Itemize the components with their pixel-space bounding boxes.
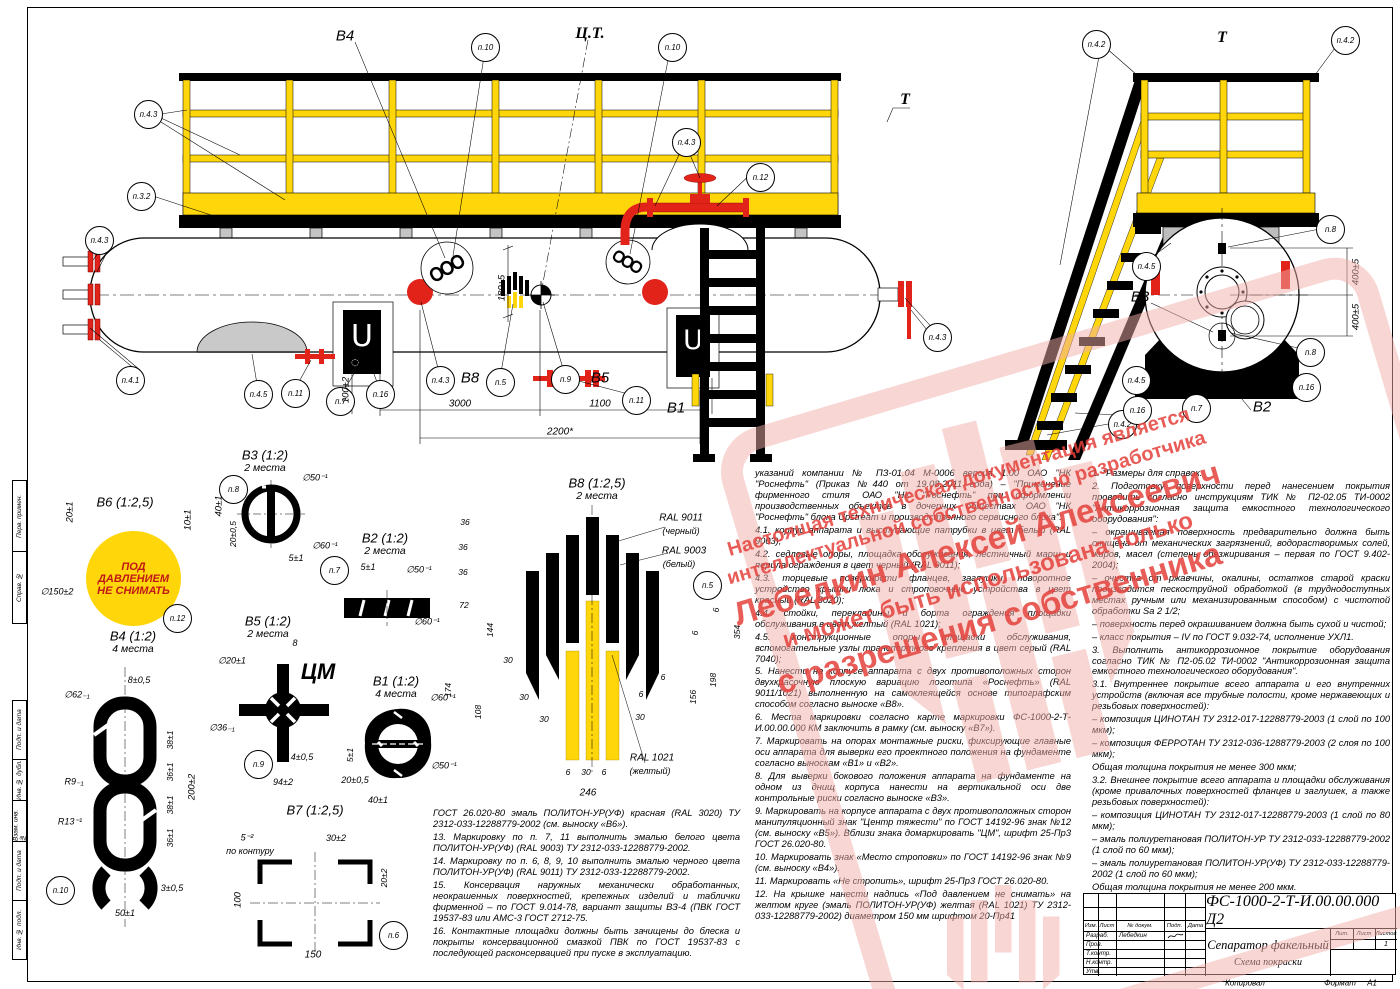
- view-letter-t-end: Т: [1217, 29, 1227, 47]
- detail-b8-ral-yellow-note: (желтый): [629, 766, 670, 776]
- note-paragraph: – эмаль полиуретановая ПОЛИТОН-УР ТУ 231…: [1092, 834, 1390, 856]
- note-paragraph: 4.3. торцевые поверхности фланцев, заглу…: [755, 573, 1071, 606]
- note-paragraph: 1. *Размеры для справок.: [1092, 468, 1390, 479]
- margin-stamp-perv-primen: Перв. примен.: [12, 480, 27, 552]
- note-paragraph: – композиция ЦИНОТАН ТУ 2312-017-1228877…: [1092, 714, 1390, 736]
- note-paragraph: 9. Маркировать на корпусе аппарата с дву…: [755, 806, 1071, 850]
- tb-header-izm: Изм.: [1084, 920, 1098, 931]
- note-paragraph: ГОСТ 26.020-80 эмаль ПОЛИТОН-УР(УФ) крас…: [433, 808, 740, 830]
- detail-b8-dr6: 198: [708, 673, 718, 687]
- detail-b8-dr7: 156: [688, 690, 698, 704]
- detail-b7-d2: 30±2: [326, 833, 346, 843]
- detail-b4-d4: R13⁻¹: [58, 817, 82, 828]
- dim-180: 180±5: [497, 275, 508, 301]
- detail-b8-dl1: 36: [460, 517, 469, 527]
- detail-b5-d1: 8: [292, 638, 297, 648]
- detail-b5-d4: 4±0,5: [291, 752, 313, 762]
- footer-format-value: А1: [1367, 979, 1377, 988]
- detail-b5-title: В5 (1:2): [245, 614, 291, 629]
- tb-listov-value: 1: [1375, 939, 1397, 949]
- callout-p45-end-b: п.4.5: [1122, 366, 1151, 395]
- detail-b1-qty: 4 места: [375, 688, 416, 700]
- detail-b3-title: В3 (1:2): [242, 448, 288, 463]
- callout-b7-p6: п.6: [379, 921, 408, 950]
- detail-b8-dr4: 6: [690, 631, 700, 636]
- detail-b1-drawing: [358, 704, 438, 784]
- note-paragraph: 15. Консервация наружных механически обр…: [433, 880, 740, 924]
- callout-p8-end-b: п.8: [1296, 338, 1325, 367]
- callout-p9-main: п.9: [551, 365, 580, 394]
- note-paragraph: 3.1. Внутреннее покрытие всего аппарата …: [1092, 679, 1390, 712]
- callout-p16-end-a: п.16: [1123, 396, 1152, 425]
- detail-b3-d2: ∅60⁻¹: [312, 541, 338, 552]
- detail-b8-dl5: 144: [485, 623, 495, 637]
- margin-stamp-label: Подп. и дата: [13, 701, 26, 759]
- detail-b8-ral-yellow: RAL 1021: [630, 753, 674, 764]
- tb-role-razrab: Разраб.: [1084, 931, 1118, 940]
- detail-b8-ral-black-note: (черный): [662, 526, 699, 536]
- detail-b8-dl2: 36: [458, 542, 467, 552]
- detail-b8-db2: 30: [581, 767, 590, 777]
- detail-b1-d4: 20±0,5: [341, 775, 368, 785]
- dim-2200: 2200*: [547, 427, 573, 438]
- detail-b8-di1: 30: [503, 655, 512, 665]
- section-arrow-t-main: Т: [900, 91, 910, 109]
- note-paragraph: 4.4. стойки, перекладины и борта огражде…: [755, 608, 1071, 630]
- sign-text-line3: НЕ СНИМАТЬ: [97, 585, 170, 597]
- callout-p43-d: п.4.3: [672, 128, 701, 157]
- note-paragraph: 13. Маркировку по п. 7, 11 выполнить эма…: [433, 832, 740, 854]
- view-label-v8: В8: [461, 370, 479, 387]
- detail-b8-db3: 6: [602, 767, 607, 777]
- detail-b4-d2: ∅62₋₁: [64, 690, 89, 701]
- detail-b7-d5: 150: [305, 950, 322, 961]
- tb-role-nkontr: Н.контр.: [1084, 958, 1118, 967]
- svg-text:U: U: [351, 319, 373, 354]
- detail-b8-di2: 30: [519, 692, 528, 702]
- dim-100b: 100±2: [701, 379, 712, 405]
- callout-p43-c: п.4.3: [426, 366, 455, 395]
- detail-b4-d6: 36±1: [165, 763, 175, 782]
- note-paragraph: 8. Для выверки бокового положения аппара…: [755, 771, 1071, 804]
- view-label-v2-end: В2: [1253, 399, 1271, 416]
- callout-p11-a: п.11: [281, 379, 310, 408]
- notes-column-right: 1. *Размеры для справок. 2. Подготовку п…: [1092, 468, 1390, 908]
- note-paragraph: Общая толщина покрытия не менее 200 мкм.: [1092, 882, 1390, 893]
- notes-column-left: ГОСТ 26.020-80 эмаль ПОЛИТОН-УР(УФ) крас…: [433, 808, 740, 961]
- detail-b8-dr1: 6: [661, 672, 666, 682]
- handrail-top: [179, 73, 841, 81]
- note-paragraph: 4.2. седловые опоры, площадка обслуживан…: [755, 549, 1071, 571]
- detail-b7-drawing: [250, 852, 380, 952]
- dim-400-a: 400±5: [1351, 259, 1362, 285]
- svg-text:◌: ◌: [351, 358, 359, 368]
- detail-b8-dl4: 72: [459, 600, 468, 610]
- detail-b8-dl6: 174: [443, 683, 453, 697]
- detail-b5-qty: 2 места: [247, 628, 288, 640]
- note-paragraph: 6. Места маркировки согласно карте марки…: [755, 712, 1071, 734]
- detail-b3-qty: 2 места: [244, 462, 285, 474]
- margin-stamp-label: Взам. инв. №: [13, 801, 26, 841]
- note-paragraph: 4.5. конструкционные опоры площадки обсл…: [755, 632, 1071, 665]
- callout-p43-a: п.4.3: [134, 100, 163, 129]
- callout-b5-p9: п.9: [244, 750, 273, 779]
- detail-b3-d5: 5±1: [289, 553, 304, 563]
- tb-header-data: Дата: [1185, 920, 1206, 931]
- callout-p11-b: п.11: [622, 386, 651, 415]
- detail-b4-drawing: [80, 665, 170, 930]
- tb-role-utv: Утв.: [1084, 967, 1118, 976]
- sling-point-sign-right: [606, 240, 650, 284]
- title-block: Изм. Лист № докум. Подп. Дата Разраб. Ле…: [1083, 893, 1396, 975]
- note-paragraph: 7. Маркировать на опорах монтажные риски…: [755, 736, 1071, 769]
- note-paragraph: 3. Выполнить антикоррозионное покрытие о…: [1092, 645, 1390, 678]
- note-paragraph: указаний компании № ПЗ-01.04 М-0006 верс…: [755, 468, 1071, 523]
- detail-b8-ral-white: RAL 9003: [662, 546, 706, 557]
- dim-100a: 100±2: [341, 377, 352, 403]
- margin-stamp-label: Инв. № дубл.: [13, 760, 26, 800]
- note-paragraph: – очистка от ржавчины, окалины, остатков…: [1092, 573, 1390, 617]
- view-label-ct: Ц.Т.: [575, 25, 604, 43]
- sign-text-line2: ДАВЛЕНИЕМ: [98, 573, 169, 585]
- footer-copied: Копировал: [1225, 979, 1265, 988]
- margin-stamp-vzam-inv: Взам. инв. №: [12, 800, 27, 842]
- callout-p16-main: п.16: [366, 380, 395, 409]
- dim-3000: 3000: [449, 399, 471, 410]
- detail-b4-title: В4 (1:2): [110, 629, 156, 644]
- callout-p42-corner: п.4.2: [1331, 26, 1360, 55]
- tb-header-ndokum: № докум.: [1116, 920, 1164, 931]
- detail-b3-d1: ∅50⁻¹: [302, 473, 328, 484]
- detail-b6-dia: ∅150±2: [41, 587, 74, 598]
- doc-number: ФС-1000-2-Т-И.00.00.000 Д2: [1206, 893, 1397, 929]
- callout-p10-left: п.10: [471, 33, 500, 62]
- callout-b8-p5: п.5: [693, 571, 722, 600]
- drawing-sheet: Перв. примен. Справ. № Подп. и дата Инв.…: [0, 0, 1400, 989]
- platform-deck: [179, 215, 841, 228]
- note-paragraph: – класс покрытия – IV по ГОСТ 9.032-74, …: [1092, 632, 1390, 643]
- detail-b5-d2: ∅20±1: [218, 656, 246, 667]
- right-nozzle: [878, 281, 912, 339]
- callout-p16-end-b: п.16: [1292, 373, 1321, 402]
- tb-header-podp: Подп.: [1164, 920, 1185, 931]
- detail-b4-d10: 3±0,5: [161, 883, 183, 893]
- detail-b6-d2: 10±1: [183, 509, 194, 530]
- detail-b7-title: В7 (1:2,5): [286, 803, 343, 818]
- detail-b3-d3: 40±1: [214, 495, 225, 516]
- detail-b8-di4: 30: [635, 712, 644, 722]
- callout-p5-main: п.5: [486, 368, 515, 397]
- sign-text-line1: ПОД: [121, 561, 145, 573]
- tb-developer-name: Лебедкин: [1117, 931, 1166, 940]
- tb-list-label: Лист: [1353, 929, 1375, 939]
- detail-b8-dr3: 6: [711, 608, 721, 613]
- note-paragraph: 11. Маркировать «Не стропить», шрифт 25-…: [755, 876, 1071, 887]
- view-label-v5: В5: [591, 370, 609, 387]
- dim-400-b: 400±5: [1351, 304, 1362, 330]
- detail-b6-title: В6 (1:2,5): [96, 495, 153, 510]
- detail-b1-d5: 40±1: [368, 795, 388, 805]
- detail-b8-di3: 30: [539, 714, 548, 724]
- tb-name-cell: Сепаратор факельный Схема покраски: [1206, 929, 1331, 976]
- detail-b1-d3: 5±1: [345, 748, 355, 762]
- note-paragraph: – поверхность перед окрашиванием должна …: [1092, 619, 1390, 630]
- note-paragraph: 2. Подготовку поверхности перед нанесени…: [1092, 481, 1390, 525]
- note-paragraph: 12. На крышке нанести надпись «Под давле…: [755, 889, 1071, 922]
- detail-b8-db4: 246: [580, 788, 597, 799]
- note-paragraph: 5. Нанести на корпусе аппарата с двух пр…: [755, 666, 1071, 710]
- callout-b4-p10: п.10: [46, 876, 75, 905]
- callout-p43-e: п.4.3: [923, 323, 952, 352]
- risk-mark-bottom: [1218, 330, 1226, 341]
- note-paragraph: 10. Маркировать знак «Место строповки» п…: [755, 852, 1071, 874]
- view-label-v4: В4: [336, 28, 354, 45]
- detail-b7-d3: 20±2: [379, 869, 389, 888]
- tb-role-prov: Пров.: [1084, 940, 1118, 949]
- detail-b8-dl7: 108: [473, 705, 483, 719]
- tb-doc-number-cell: ФС-1000-2-Т-И.00.00.000 Д2: [1206, 894, 1397, 929]
- tb-lit-label: Лит.: [1331, 929, 1353, 939]
- detail-b4-d11: 50±1: [115, 908, 135, 918]
- note-paragraph: – композиция ЦИНОТАН ТУ 2312-017-1228877…: [1092, 810, 1390, 832]
- callout-p41: п.4.1: [116, 366, 145, 395]
- detail-b5-cm: ЦМ: [301, 659, 335, 685]
- doc-title: Сепаратор факельный: [1207, 938, 1329, 953]
- detail-b2-qty: 2 места: [364, 545, 405, 557]
- detail-b8-dr5: 354: [732, 625, 742, 639]
- callout-p45-main: п.4.5: [244, 380, 273, 409]
- detail-b4-d8: 36±1: [165, 829, 175, 848]
- tb-role-tkontr: Т.контр.: [1084, 949, 1118, 958]
- detail-b2-d3: ∅60⁻¹: [414, 617, 440, 628]
- callout-p8-end-a: п.8: [1316, 215, 1345, 244]
- margin-stamp-podp-data-1: Подп. и дата: [12, 700, 27, 760]
- view-label-v1: В1: [667, 400, 685, 417]
- detail-b2-d2: ∅50⁻¹: [406, 565, 432, 576]
- note-paragraph: 16. Контактные площадки должны быть зачи…: [433, 926, 740, 959]
- risk-mark-top: [1218, 243, 1226, 254]
- tb-listov-label: Листов: [1375, 929, 1397, 939]
- margin-stamp-podp-data-2: Подп. и дата: [12, 841, 27, 901]
- notes-column-middle: указаний компании № ПЗ-01.04 М-0006 верс…: [755, 468, 1071, 924]
- detail-b8-dr2: 6: [639, 689, 644, 699]
- margin-stamp-label: Перв. примен.: [13, 481, 26, 551]
- detail-b7-d4: 100: [233, 892, 244, 908]
- callout-p10-right: п.10: [658, 33, 687, 62]
- tb-header-list: Лист: [1098, 920, 1116, 931]
- margin-stamp-label: Инв. № подл.: [13, 901, 26, 959]
- note-paragraph: 3.2. Внешнее покрытие всего аппарата и п…: [1092, 775, 1390, 808]
- detail-b4-d7: 38±1: [165, 796, 175, 815]
- detail-b1-d2: ∅50⁻¹: [431, 761, 457, 772]
- detail-b7-note: по контуру: [226, 846, 274, 856]
- dim-1100: 1100: [589, 399, 611, 410]
- main-view-drawing: U ◌ U: [55, 10, 955, 470]
- note-paragraph: – эмаль полиуретановая ПОЛИТОН-УР(УФ) ТУ…: [1092, 858, 1390, 880]
- note-paragraph: – композиция ФЕРРОТАН ТУ 2312-036-128877…: [1092, 738, 1390, 760]
- callout-p12-main: п.12: [746, 163, 775, 192]
- callout-p42-top: п.4.2: [1082, 30, 1111, 59]
- detail-b8-title: В8 (1:2,5): [568, 476, 625, 491]
- end-nozzle-right: [1281, 261, 1290, 289]
- detail-b7-d1: 5⁻²: [241, 833, 254, 844]
- view-label-v3-end: В3: [1131, 289, 1149, 306]
- signature: [1166, 931, 1184, 940]
- note-paragraph: – окрашиваемая поверхность предварительн…: [1092, 527, 1390, 571]
- footer-format-label: Формат: [1324, 979, 1356, 988]
- margin-stamp-label: Справ. №: [13, 552, 26, 623]
- note-paragraph: 4.1. корпус аппарата и выступающие патру…: [755, 525, 1071, 547]
- margin-stamp-sprav: Справ. №: [12, 551, 27, 624]
- detail-b4-d9: 200±2: [187, 774, 198, 800]
- detail-b4-d1: 8±0,5: [128, 675, 150, 685]
- detail-b3-d4: 20±0,5: [228, 521, 238, 547]
- detail-b5-d3: ∅36₋₁: [209, 723, 234, 734]
- tb-lit-grid: Лит. Лист Листов 1: [1331, 929, 1397, 976]
- margin-stamp-inv-dubl: Инв. № дубл.: [12, 759, 27, 801]
- detail-b4-d5: 38±1: [165, 731, 175, 750]
- detail-b8-ral-white-note: (белый): [663, 559, 695, 569]
- detail-b1-title: В1 (1:2): [373, 674, 419, 689]
- detail-b2-title: В2 (1:2): [362, 531, 408, 546]
- note-paragraph: 14. Маркировку по п. 6, 8, 9, 10 выполни…: [433, 856, 740, 878]
- detail-b4-d3: R9₋₁: [64, 777, 83, 788]
- callout-p45-end-a: п.4.5: [1132, 252, 1161, 281]
- callout-b2-p7: п.7: [320, 556, 349, 585]
- detail-b8-dl3: 36: [458, 567, 467, 577]
- doc-subtitle: Схема покраски: [1234, 957, 1302, 968]
- detail-b8-ral-black: RAL 9011: [659, 513, 703, 524]
- callout-p32: п.3.2: [127, 182, 156, 211]
- detail-b6-d1: 20±1: [65, 501, 76, 522]
- detail-b5-d5: 94±2: [273, 777, 293, 787]
- sling-point-sign-left: [421, 242, 473, 294]
- detail-b2-d1: 5±1: [361, 562, 376, 572]
- callout-b6-p12: п.12: [163, 604, 192, 633]
- callout-p43-b: п.4.3: [85, 226, 114, 255]
- detail-b8-db1: 6: [566, 767, 571, 777]
- callout-p7-end: п.7: [1182, 394, 1211, 423]
- note-paragraph: Общая толщина покрытия не менее 300 мкм;: [1092, 762, 1390, 773]
- margin-stamp-inv-podl: Инв. № подл.: [12, 900, 27, 960]
- margin-stamp-label: Подп. и дата: [13, 842, 26, 900]
- detail-b4-qty: 4 места: [112, 643, 153, 655]
- red-mark-circle-2: [642, 279, 668, 305]
- detail-b8-qty: 2 места: [576, 490, 617, 502]
- svg-text:U: U: [683, 325, 703, 356]
